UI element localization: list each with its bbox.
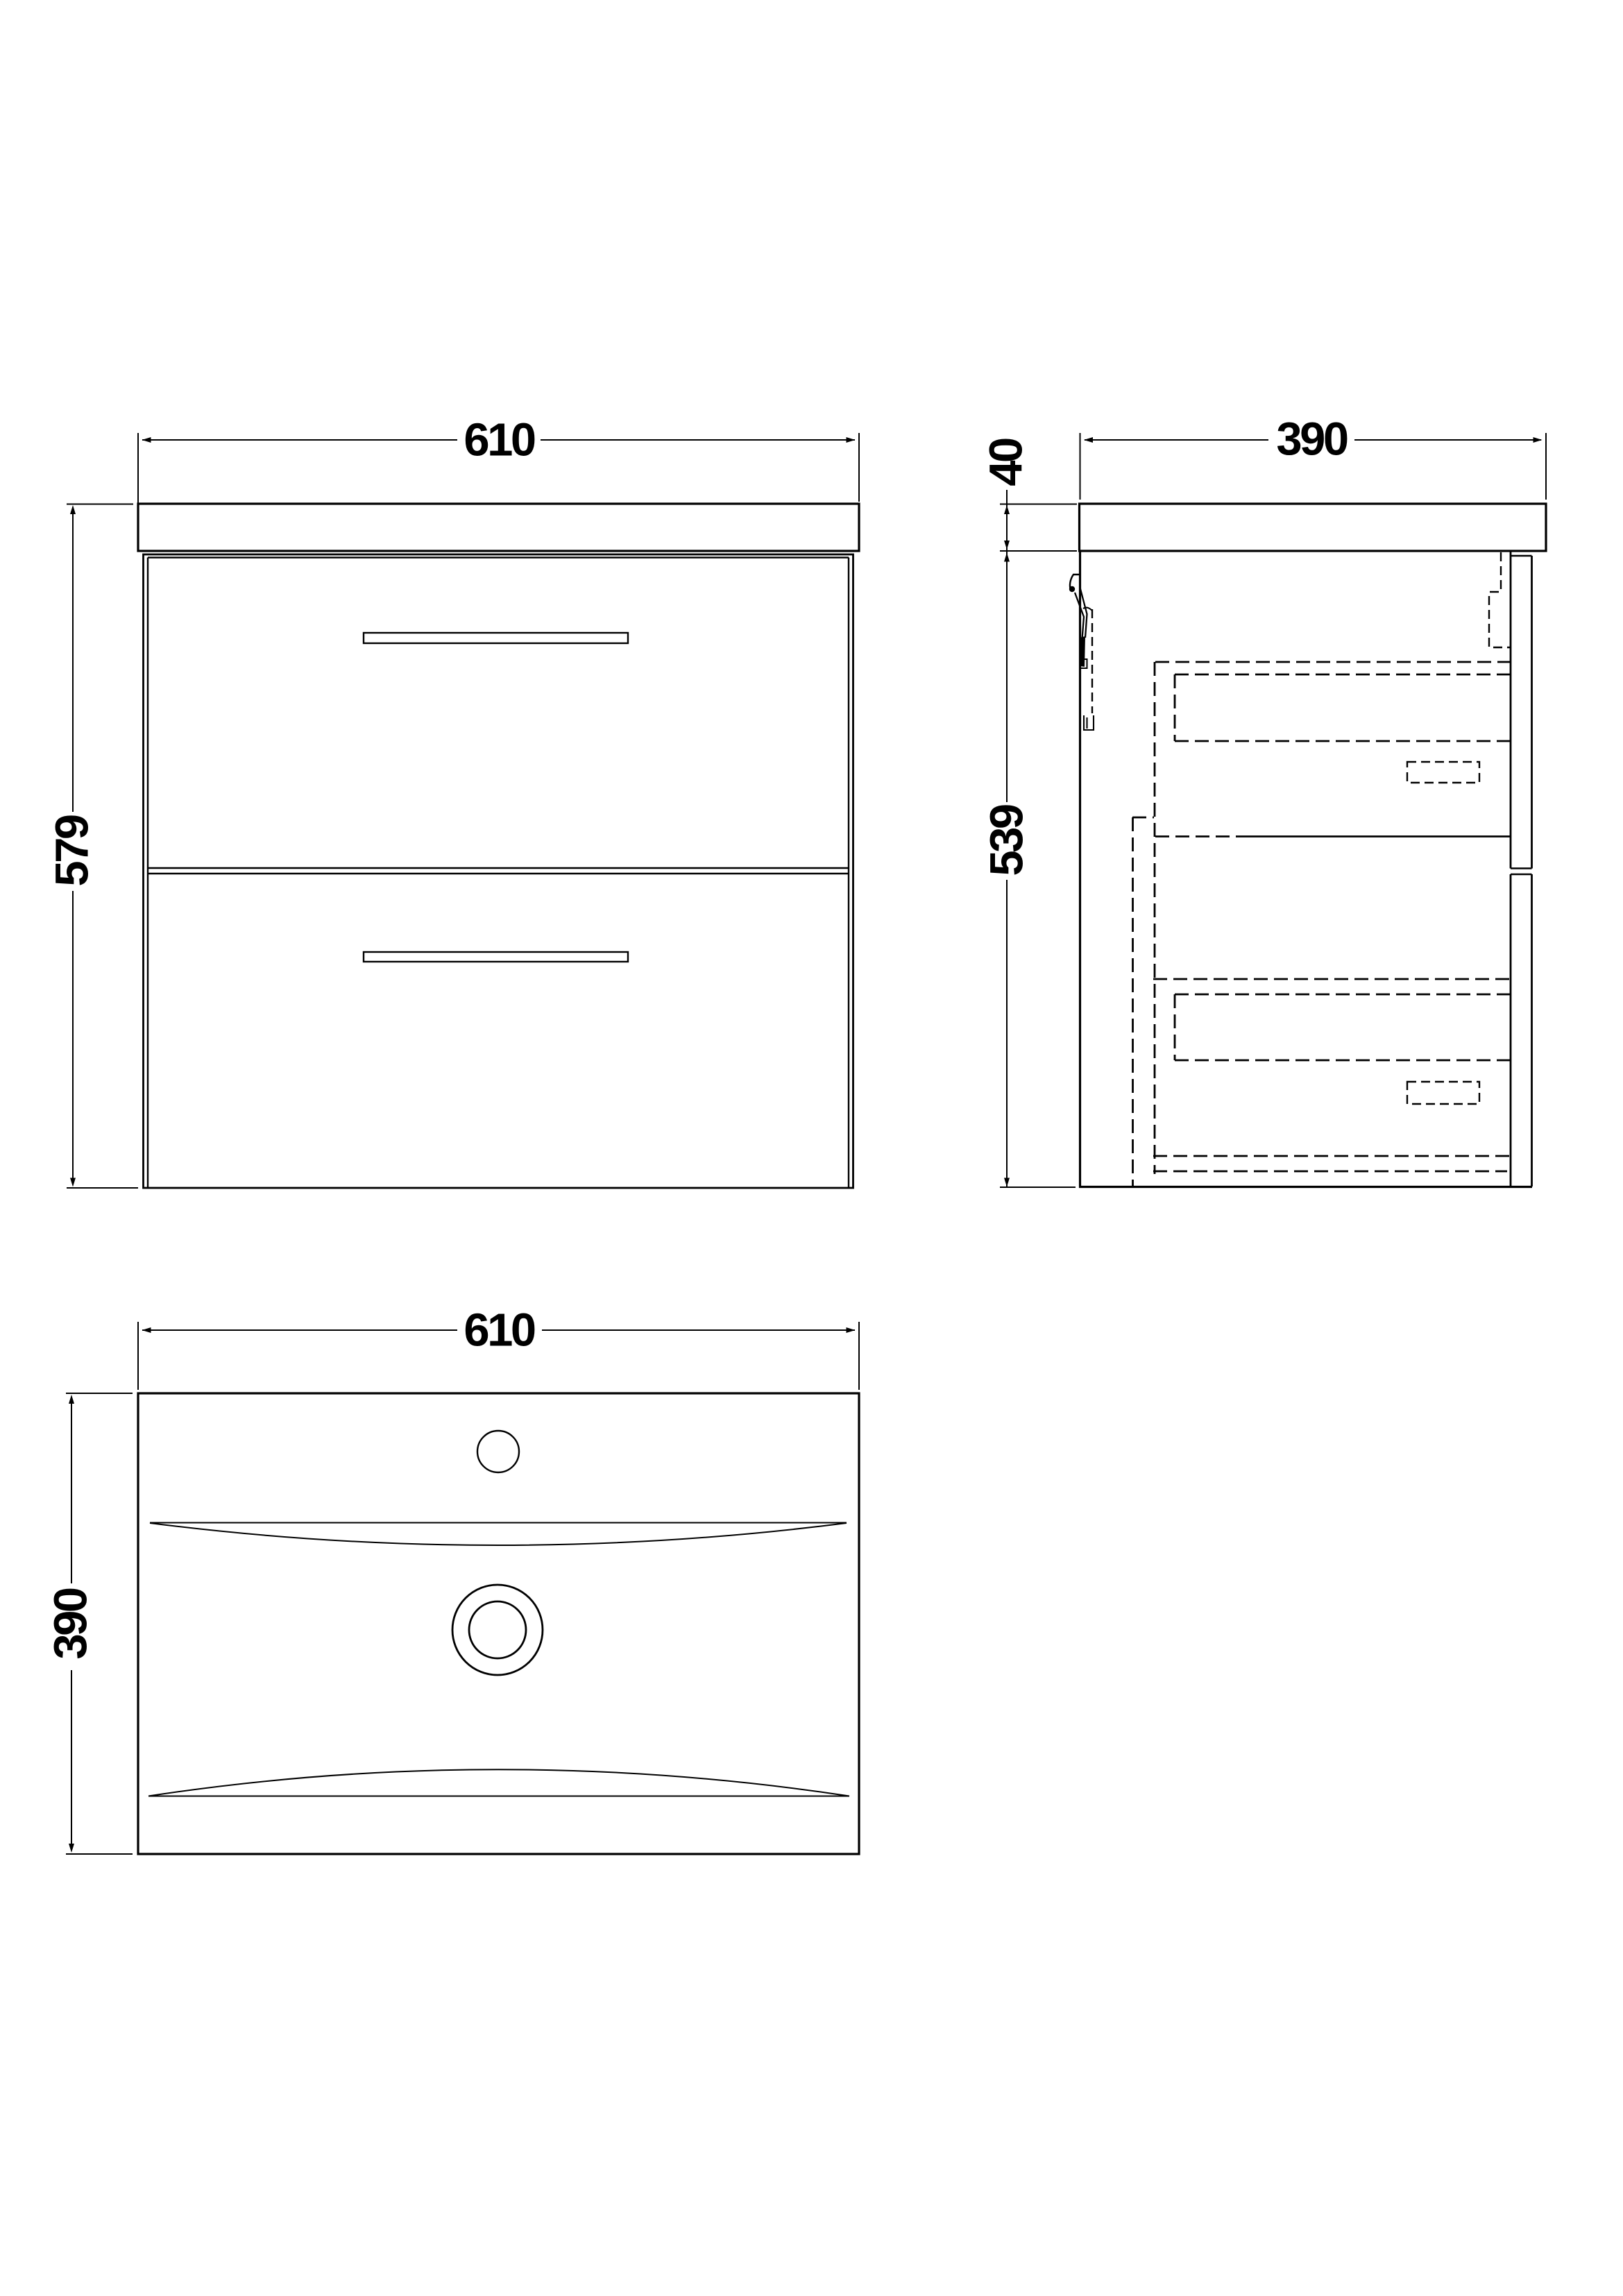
svg-text:390: 390 bbox=[1276, 414, 1348, 466]
svg-text:610: 610 bbox=[464, 1304, 535, 1357]
svg-text:40: 40 bbox=[980, 439, 1033, 486]
svg-text:579: 579 bbox=[46, 815, 99, 887]
svg-text:610: 610 bbox=[464, 414, 535, 466]
svg-text:539: 539 bbox=[981, 805, 1033, 876]
svg-text:390: 390 bbox=[45, 1588, 97, 1660]
